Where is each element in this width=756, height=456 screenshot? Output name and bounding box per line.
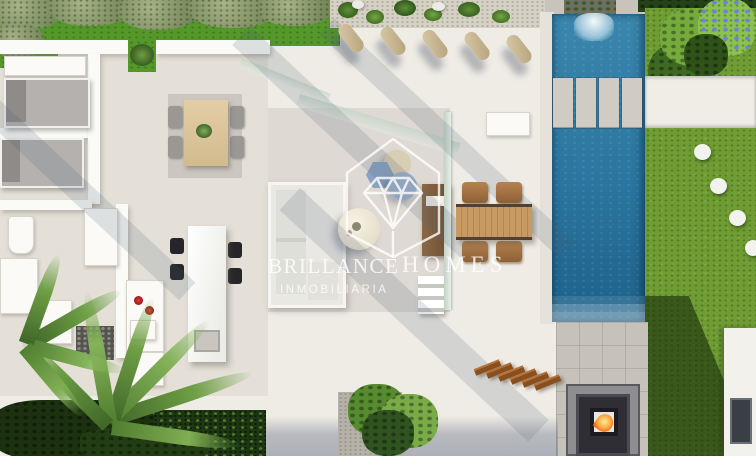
sofa-chaise bbox=[308, 262, 338, 300]
bar-stool bbox=[228, 242, 242, 258]
plant-pot bbox=[352, 0, 364, 9]
outdoor-chair bbox=[462, 182, 488, 203]
stepping-stone bbox=[745, 240, 756, 256]
bolster-cushion bbox=[504, 32, 535, 66]
terrace-bench bbox=[486, 112, 530, 136]
house-top-wall bbox=[0, 40, 128, 54]
stepping-stone bbox=[710, 178, 727, 194]
dining-chair bbox=[230, 136, 244, 158]
stepping-stone bbox=[729, 210, 746, 226]
swimming-pool bbox=[552, 14, 645, 322]
hall-wall bbox=[88, 54, 100, 204]
pool-planter bbox=[564, 0, 616, 14]
pool-crossing-slab bbox=[622, 78, 642, 128]
atrium-plant bbox=[130, 44, 154, 66]
structure-window bbox=[730, 398, 752, 444]
outdoor-chair bbox=[462, 241, 488, 262]
hob-burner bbox=[134, 296, 143, 305]
toilet bbox=[8, 216, 34, 254]
bar-stool bbox=[170, 238, 184, 254]
table-decor bbox=[352, 222, 361, 231]
pool-crossing-slab bbox=[599, 78, 619, 128]
outdoor-chair bbox=[496, 182, 522, 203]
stepping-stone bbox=[694, 144, 711, 160]
dining-chair bbox=[168, 106, 182, 128]
pool-crossing-slab bbox=[553, 78, 573, 128]
villa-aerial-render: BRILLANCE HOMES INMOBILIARIA bbox=[0, 0, 756, 456]
outdoor-dining-table bbox=[456, 204, 532, 240]
bush-shadow-crevice bbox=[684, 34, 728, 76]
bush bbox=[362, 410, 414, 456]
pool-crossing-slab bbox=[576, 78, 596, 128]
plant-tuft bbox=[366, 10, 384, 24]
closet bbox=[4, 56, 86, 76]
plant-pot bbox=[432, 2, 445, 11]
bolster-cushion bbox=[420, 27, 451, 61]
plant-tuft bbox=[394, 0, 416, 16]
outdoor-chair bbox=[496, 241, 522, 262]
pool-steps bbox=[552, 296, 645, 322]
plant-tuft bbox=[492, 10, 510, 23]
table-plant bbox=[196, 124, 212, 138]
bar-stool bbox=[228, 268, 242, 284]
dining-chair bbox=[230, 106, 244, 128]
garden-path bbox=[645, 76, 756, 128]
waterfall bbox=[574, 13, 614, 41]
bolster-cushion bbox=[462, 29, 493, 63]
dining-chair bbox=[168, 136, 182, 158]
bolster-cushion bbox=[378, 24, 409, 58]
plant-tuft bbox=[458, 2, 480, 17]
